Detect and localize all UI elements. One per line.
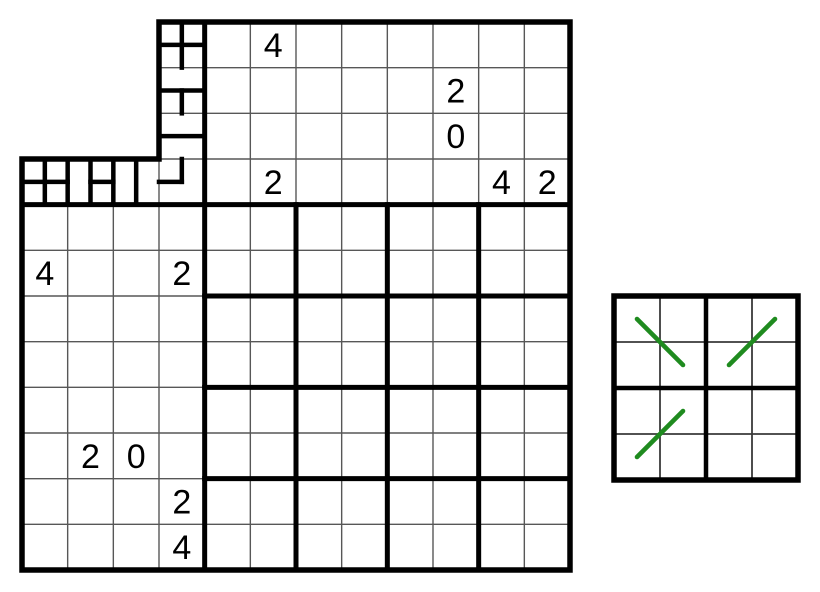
- clue-number: 4: [492, 164, 511, 202]
- clue-number: 2: [538, 164, 557, 202]
- clue-number: 2: [81, 438, 100, 476]
- clue-number: 4: [264, 27, 283, 65]
- clue-number: 2: [446, 73, 465, 111]
- puzzle-figure: 420242422024: [0, 0, 820, 592]
- clue-number: 0: [446, 118, 465, 156]
- clue-number: 0: [127, 438, 146, 476]
- figure-canvas: 420242422024: [0, 0, 820, 592]
- clue-number: 4: [172, 529, 191, 567]
- clue-number: 2: [172, 484, 191, 522]
- clue-number: 4: [35, 255, 54, 293]
- clue-number: 2: [172, 255, 191, 293]
- clue-number: 2: [264, 164, 283, 202]
